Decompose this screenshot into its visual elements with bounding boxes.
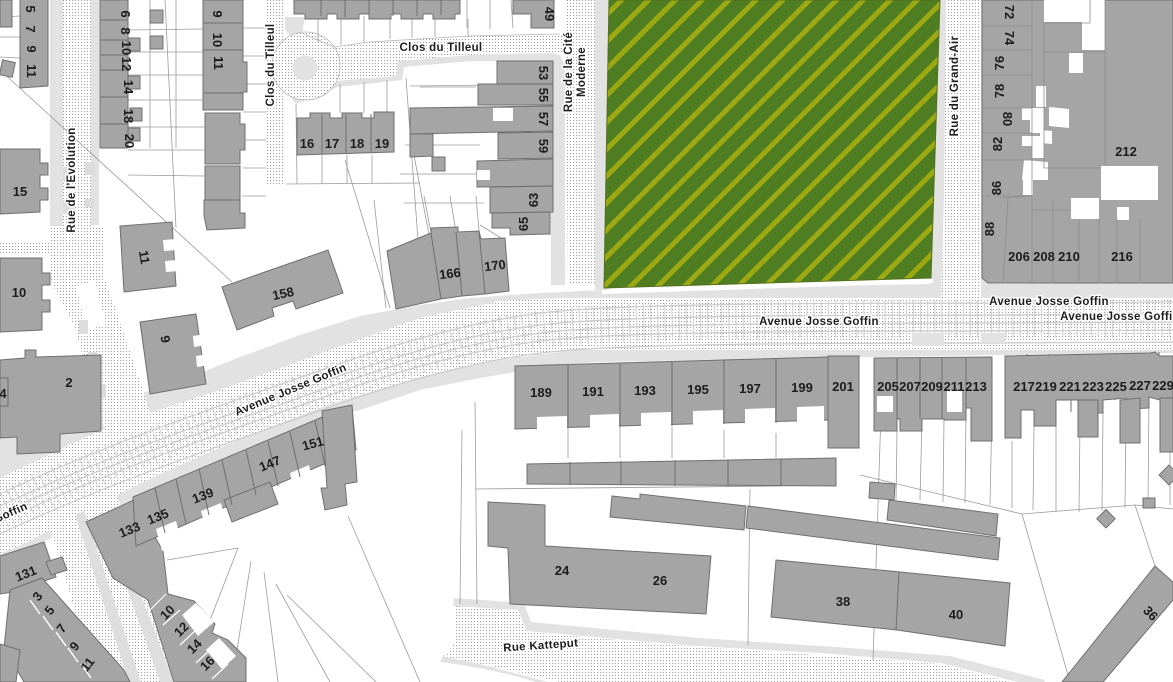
svg-text:6: 6: [118, 10, 133, 17]
svg-text:72: 72: [1002, 5, 1017, 19]
svg-text:9: 9: [210, 10, 225, 17]
svg-text:10: 10: [210, 33, 225, 47]
svg-text:Avenue Josse Goffin: Avenue Josse Goffin: [759, 316, 879, 328]
svg-text:191: 191: [582, 384, 604, 399]
svg-text:76: 76: [992, 56, 1007, 70]
svg-text:201: 201: [832, 379, 854, 394]
svg-text:7: 7: [23, 25, 38, 32]
svg-text:Avenue Josse Goffin: Avenue Josse Goffin: [1060, 311, 1173, 323]
svg-text:26: 26: [653, 573, 667, 588]
svg-text:8: 8: [118, 27, 133, 34]
svg-text:195: 195: [687, 382, 709, 397]
svg-text:205: 205: [877, 379, 899, 394]
svg-text:86: 86: [989, 181, 1004, 195]
svg-text:221: 221: [1059, 379, 1081, 394]
svg-text:4: 4: [0, 386, 7, 401]
svg-text:170: 170: [483, 257, 506, 275]
svg-text:Rue de la Cité: Rue de la Cité: [563, 32, 575, 112]
svg-text:Moderne: Moderne: [576, 47, 588, 97]
svg-text:57: 57: [536, 112, 551, 126]
svg-text:20: 20: [122, 134, 137, 148]
svg-text:Clos du Tilleul: Clos du Tilleul: [265, 24, 277, 107]
svg-text:225: 225: [1105, 379, 1127, 394]
svg-text:9: 9: [24, 45, 39, 52]
svg-text:14: 14: [121, 80, 136, 95]
svg-text:11: 11: [24, 64, 39, 78]
svg-text:10: 10: [119, 41, 134, 55]
svg-text:166: 166: [438, 265, 461, 283]
svg-text:38: 38: [836, 594, 850, 609]
svg-text:216: 216: [1111, 249, 1133, 264]
svg-text:80: 80: [1000, 112, 1015, 126]
svg-text:207: 207: [899, 379, 921, 394]
svg-text:206: 206: [1008, 249, 1030, 264]
svg-text:11: 11: [136, 249, 153, 265]
svg-text:212: 212: [1115, 144, 1137, 159]
svg-text:210: 210: [1058, 249, 1080, 264]
svg-text:11: 11: [211, 56, 226, 70]
svg-text:193: 193: [634, 383, 656, 398]
svg-text:5: 5: [23, 5, 38, 12]
svg-text:2: 2: [65, 375, 72, 390]
svg-text:211: 211: [944, 379, 965, 394]
svg-text:Rue de l'Evolution: Rue de l'Evolution: [66, 127, 78, 232]
svg-text:82: 82: [990, 137, 1005, 151]
svg-text:10: 10: [12, 285, 26, 300]
svg-text:15: 15: [13, 184, 27, 199]
svg-text:65: 65: [516, 217, 531, 231]
svg-text:199: 199: [791, 380, 813, 395]
svg-text:88: 88: [982, 222, 997, 236]
svg-text:Avenue Josse Goffin: Avenue Josse Goffin: [989, 296, 1109, 308]
svg-text:197: 197: [739, 381, 761, 396]
svg-text:223: 223: [1082, 379, 1104, 394]
svg-text:16: 16: [300, 136, 314, 151]
svg-text:229: 229: [1152, 378, 1173, 393]
svg-text:55: 55: [536, 88, 551, 102]
svg-text:74: 74: [1002, 31, 1017, 46]
svg-text:227: 227: [1129, 378, 1151, 393]
svg-text:78: 78: [992, 84, 1007, 98]
svg-text:213: 213: [965, 379, 987, 394]
svg-text:63: 63: [526, 193, 541, 207]
svg-text:18: 18: [121, 109, 136, 123]
svg-text:Rue du Grand-Air: Rue du Grand-Air: [949, 35, 961, 136]
svg-text:24: 24: [555, 563, 570, 578]
svg-text:40: 40: [949, 607, 963, 622]
svg-text:209: 209: [921, 379, 943, 394]
svg-text:49: 49: [542, 7, 557, 21]
svg-text:219: 219: [1035, 379, 1057, 394]
svg-text:208: 208: [1033, 249, 1055, 264]
svg-text:Clos du Tilleul: Clos du Tilleul: [400, 42, 483, 54]
svg-text:12: 12: [119, 57, 134, 71]
svg-text:18: 18: [350, 136, 364, 151]
svg-text:19: 19: [375, 136, 389, 151]
svg-text:217: 217: [1013, 379, 1035, 394]
svg-text:189: 189: [530, 385, 552, 400]
svg-text:53: 53: [536, 66, 551, 80]
svg-text:59: 59: [536, 139, 551, 153]
svg-text:17: 17: [325, 136, 339, 151]
